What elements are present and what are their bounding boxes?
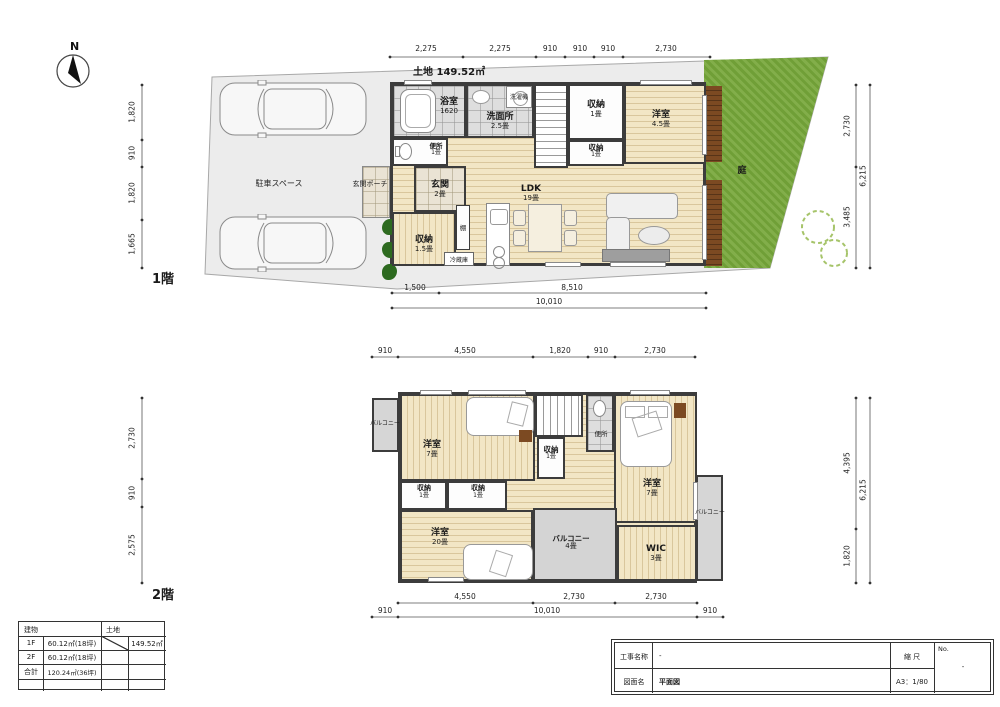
dining-table — [528, 204, 562, 252]
no-value: - — [962, 663, 965, 671]
dim: 910 — [573, 44, 587, 53]
window — [630, 390, 670, 395]
land-value: 149.52㎡ — [131, 639, 163, 649]
label-toilet-2f: 便所 — [595, 428, 608, 438]
balcony-right — [696, 475, 723, 581]
dim: 1,665 — [128, 233, 137, 254]
floor-plan-sheet: N 駐車スペース 玄関ポーチ — [0, 0, 1000, 707]
area-row-key: 1F — [27, 639, 35, 647]
chair-icon — [513, 230, 526, 246]
pillow-icon — [507, 401, 529, 426]
scale-value: A3：1/80 — [896, 677, 928, 687]
toilet-icon — [593, 400, 606, 417]
north-label: N — [70, 40, 79, 53]
chair-icon — [513, 210, 526, 226]
car-top — [218, 80, 368, 138]
dim: 2,275 — [489, 44, 510, 53]
window — [702, 95, 707, 155]
window — [640, 80, 692, 85]
label-ldk: LDK19畳 — [521, 184, 541, 203]
stairs-2f — [535, 394, 583, 437]
north-compass: N — [50, 36, 96, 92]
shelf-unit — [674, 403, 686, 418]
label-garden: 庭 — [737, 166, 746, 177]
dim: 2,730 — [563, 592, 584, 601]
window — [610, 262, 666, 267]
label-closet-low: 収納1.5畳 — [415, 235, 433, 254]
dim: 10,010 — [536, 297, 562, 306]
chair-icon — [564, 210, 577, 226]
bed-single — [463, 544, 533, 580]
dim: 910 — [378, 346, 392, 355]
porch-label: 玄関ポーチ — [353, 179, 388, 189]
bathtub — [400, 89, 436, 133]
dim: 10,010 — [534, 606, 560, 615]
window — [428, 577, 464, 582]
chair-icon — [564, 230, 577, 246]
label-washer: 洗濯機 — [510, 92, 528, 101]
label-balcony-right: バルコニー — [695, 507, 725, 516]
label-closet-2f-mid: 収納1畳 — [544, 445, 559, 461]
car-bottom — [218, 214, 368, 272]
dim: 2,730 — [645, 592, 666, 601]
stairs-1f — [534, 84, 568, 168]
label-entrance: 玄関2畳 — [431, 180, 449, 199]
window — [702, 185, 707, 260]
label-bedroom-right: 洋室7畳 — [643, 479, 661, 498]
dim: 1,820 — [128, 182, 137, 203]
floor-label-1f: 1階 — [152, 268, 174, 287]
dim: 4,550 — [454, 592, 475, 601]
area-row-value: 120.24㎡(36坪) — [47, 667, 96, 677]
label-fridge: 冷蔵庫 — [450, 255, 468, 264]
dim: 910 — [703, 606, 717, 615]
side-table — [519, 430, 532, 442]
label-toilet-1f: 便所1畳 — [430, 142, 443, 157]
area-row-value: 60.12㎡(18坪) — [48, 653, 96, 663]
label-closet-2f-b: 収納1畳 — [471, 484, 485, 499]
dim: 910 — [594, 346, 608, 355]
dim: 910 — [128, 486, 137, 500]
toilet-tank-icon — [395, 146, 400, 157]
kitchen-sink-icon — [490, 209, 508, 225]
dim: 4,550 — [454, 346, 475, 355]
dim: 1,820 — [843, 545, 852, 566]
dim: 4,395 — [843, 452, 852, 473]
project-value: - — [659, 652, 662, 660]
dim: 6,215 — [859, 479, 868, 500]
label-washroom: 洗面所2.5畳 — [486, 112, 513, 131]
floor-label-2f: 2階 — [152, 584, 174, 603]
dim: 2,575 — [128, 534, 137, 555]
toilet-icon — [399, 143, 412, 160]
label-balcony-4: バルコニー4畳 — [552, 534, 589, 551]
wood-deck-upper — [706, 86, 722, 162]
label-bedroom45: 洋室4.5畳 — [652, 110, 670, 129]
bed-double — [620, 401, 672, 467]
dim: 1,820 — [128, 101, 137, 122]
coffee-table — [638, 226, 670, 245]
area-row-key: 2F — [27, 653, 35, 661]
window — [468, 390, 526, 395]
dim: 910 — [601, 44, 615, 53]
area-row-value: 60.12㎡(18坪) — [48, 639, 96, 649]
land-area-label: 土地 149.52㎡ — [413, 63, 485, 78]
tv-board — [602, 249, 670, 262]
label-closet-2f-a: 収納1畳 — [417, 484, 431, 499]
label-closet-mid: 収納1畳 — [589, 143, 604, 159]
label-shelf: 棚 — [460, 222, 467, 232]
stove-burner-icon — [493, 257, 505, 269]
label-bedroom-left: 洋室7畳 — [423, 440, 441, 459]
dim: 6,215 — [859, 165, 868, 186]
drawing-name-label: 図面名 — [624, 677, 645, 687]
area-row-key: 合計 — [24, 667, 38, 677]
label-balcony-left: バルコニー — [370, 418, 400, 427]
area-table: 建物 土地 1F 60.12㎡(18坪) 149.52㎡ 2F 60.12㎡(1… — [18, 621, 165, 690]
parking-label: 駐車スペース — [255, 178, 302, 189]
window — [404, 80, 432, 85]
scale-label: 縮 尺 — [904, 652, 920, 662]
dim: 2,730 — [644, 346, 665, 355]
no-label: No. — [938, 645, 949, 653]
dim: 2,730 — [843, 115, 852, 136]
label-wic: WIC3畳 — [646, 544, 666, 563]
dim: 8,510 — [561, 283, 582, 292]
project-label: 工事名称 — [620, 652, 648, 662]
drawing-name-value: 平面図 — [659, 677, 680, 687]
wood-deck-lower — [706, 180, 722, 266]
sofa-seat — [606, 193, 678, 219]
pillow-icon — [489, 550, 513, 577]
window — [545, 262, 581, 267]
window — [420, 390, 452, 395]
dim: 2,275 — [415, 44, 436, 53]
label-closet-top: 収納1畳 — [587, 100, 605, 119]
entrance-porch — [362, 166, 390, 218]
dim: 2,730 — [655, 44, 676, 53]
dim: 910 — [543, 44, 557, 53]
label-bathroom: 浴室1620 — [440, 97, 458, 116]
area-table-land-header: 土地 — [106, 625, 120, 635]
dim: 1,820 — [549, 346, 570, 355]
area-table-building-header: 建物 — [24, 625, 38, 635]
dim: 1,500 — [404, 283, 425, 292]
diagonal-cell — [101, 636, 128, 650]
dim: 2,730 — [128, 427, 137, 448]
label-bedroom-main: 洋室20畳 — [431, 528, 449, 547]
dim: 910 — [378, 606, 392, 615]
kitchen-counter — [486, 203, 510, 266]
title-block: 工事名称 - 縮 尺 No. - 図面名 平面図 A3：1/80 — [614, 642, 991, 692]
dim: 3,485 — [843, 206, 852, 227]
dim: 910 — [128, 146, 137, 160]
sink-icon — [472, 90, 490, 104]
